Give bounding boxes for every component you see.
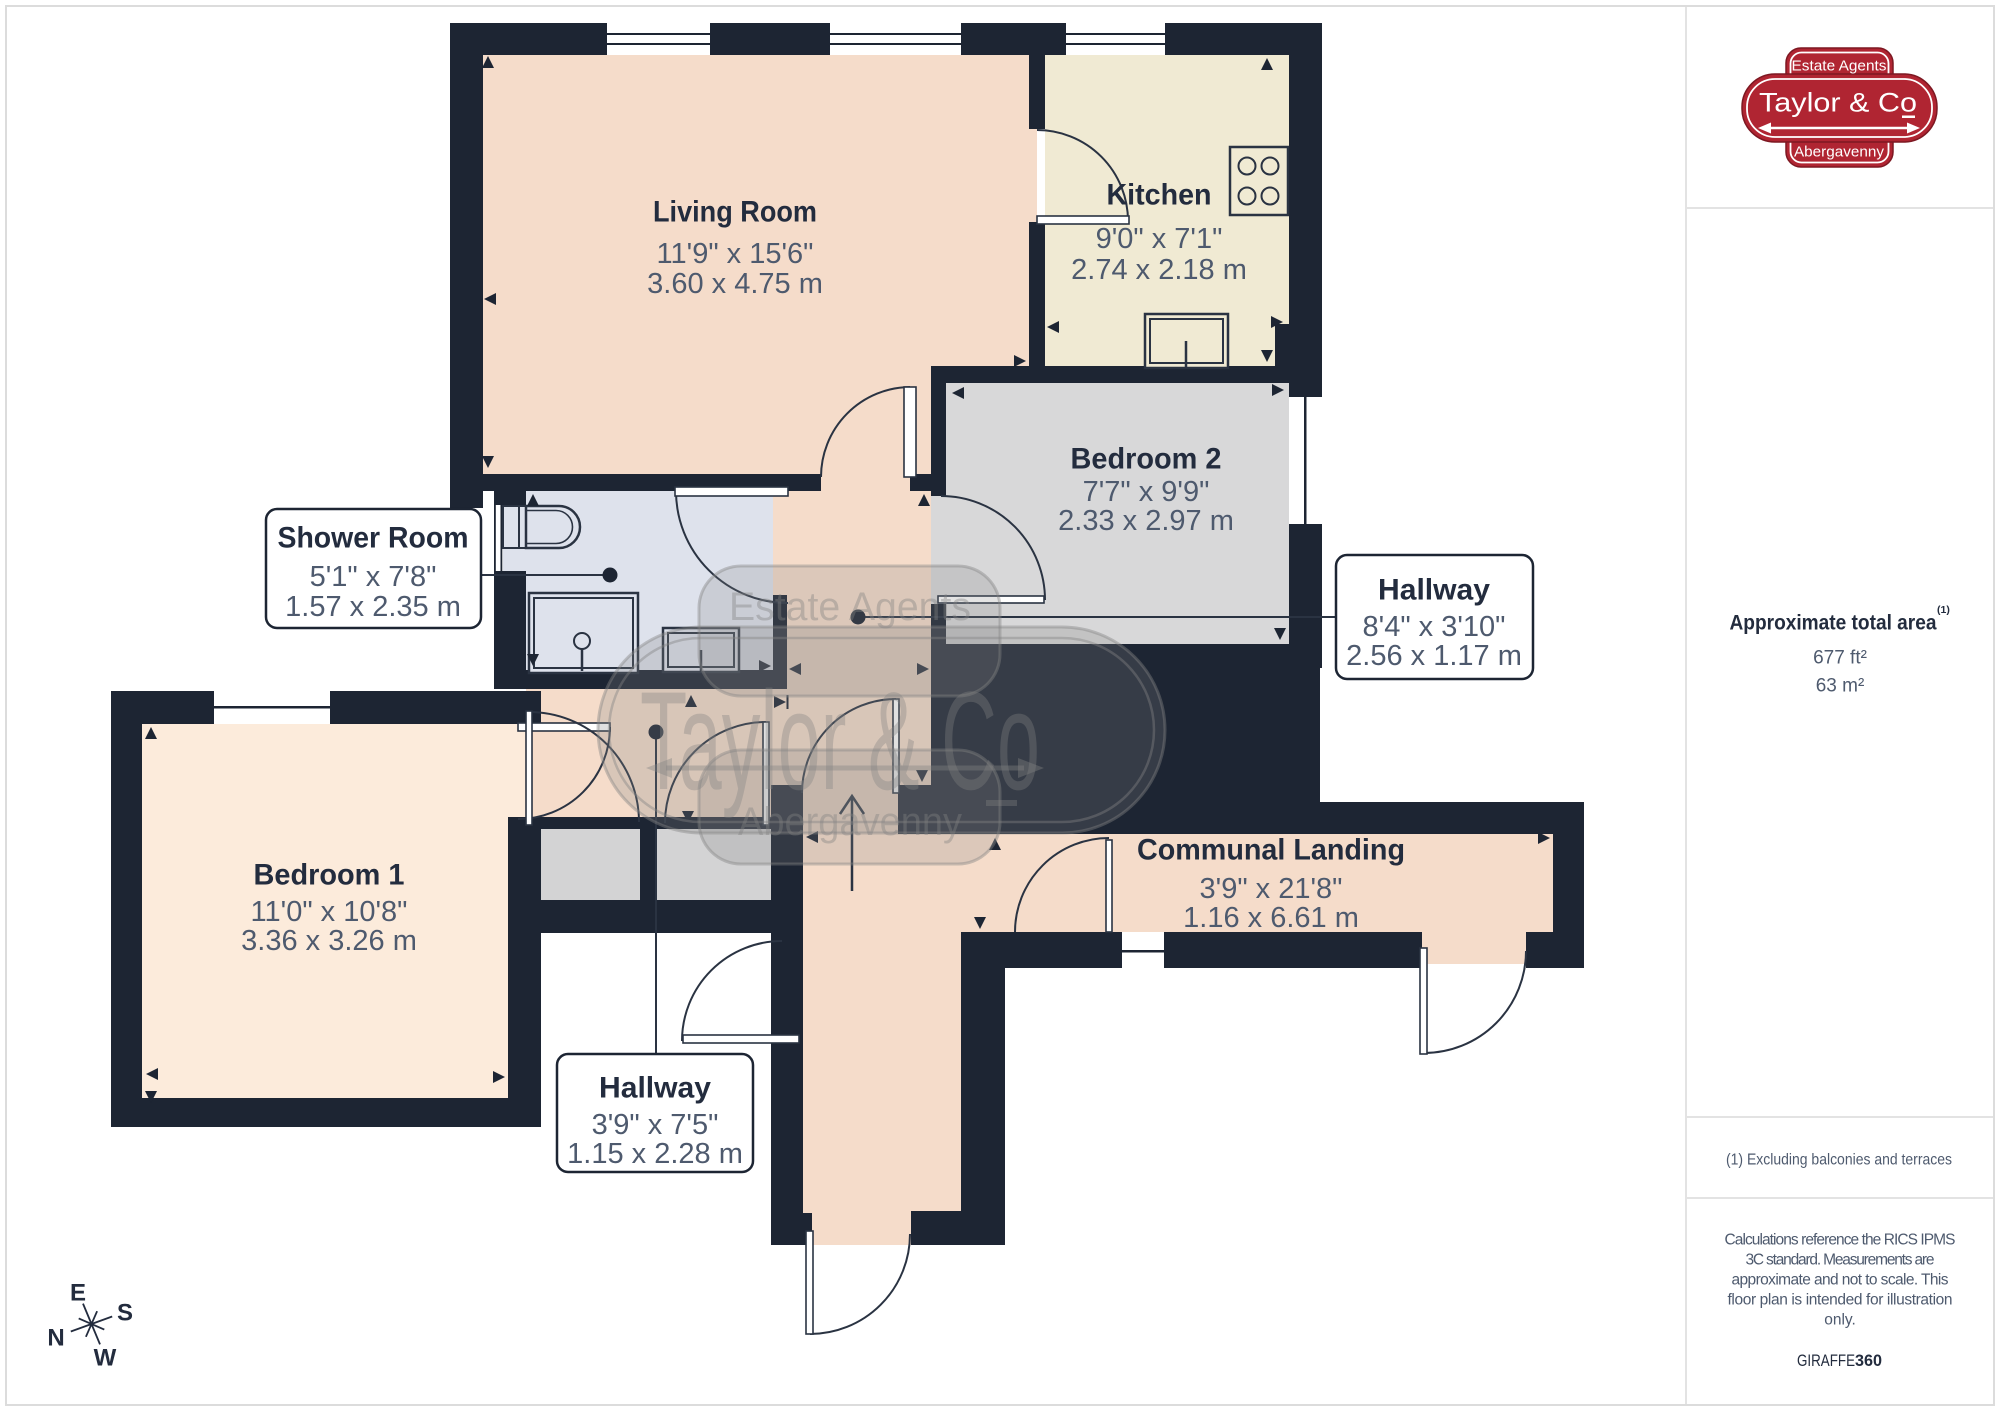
svg-text:only.: only. bbox=[1824, 1311, 1856, 1328]
svg-text:Calculations reference the RIC: Calculations reference the RICS IPMS bbox=[1725, 1231, 1956, 1248]
svg-text:GIRAFFE: GIRAFFE bbox=[1797, 1351, 1855, 1370]
svg-text:2.74 x 2.18 m: 2.74 x 2.18 m bbox=[1071, 254, 1247, 286]
svg-text:Estate Agents: Estate Agents bbox=[1792, 57, 1887, 74]
svg-text:Shower Room: Shower Room bbox=[278, 522, 469, 555]
svg-text:7'7" x 9'9": 7'7" x 9'9" bbox=[1083, 476, 1210, 508]
svg-text:63 m²: 63 m² bbox=[1816, 676, 1865, 697]
svg-text:Abergavenny: Abergavenny bbox=[738, 800, 962, 844]
svg-text:5'1" x 7'8": 5'1" x 7'8" bbox=[310, 561, 437, 593]
svg-text:1.57 x 2.35 m: 1.57 x 2.35 m bbox=[285, 591, 461, 623]
svg-text:Abergavenny: Abergavenny bbox=[1794, 143, 1884, 160]
svg-text:Estate Agents: Estate Agents bbox=[729, 585, 971, 629]
svg-text:Hallway: Hallway bbox=[1378, 574, 1490, 607]
svg-text:approximate and not to scale.: approximate and not to scale. This bbox=[1732, 1271, 1949, 1288]
svg-text:8'4" x 3'10": 8'4" x 3'10" bbox=[1363, 611, 1506, 643]
svg-text:Living Room: Living Room bbox=[653, 196, 817, 229]
svg-text:(1) Excluding balconies and te: (1) Excluding balconies and terraces bbox=[1726, 1152, 1952, 1169]
svg-text:2.33 x 2.97 m: 2.33 x 2.97 m bbox=[1058, 505, 1234, 537]
svg-text:1.16 x 6.61 m: 1.16 x 6.61 m bbox=[1183, 902, 1359, 934]
svg-text:2.56 x 1.17 m: 2.56 x 1.17 m bbox=[1346, 640, 1522, 672]
svg-text:11'9" x 15'6": 11'9" x 15'6" bbox=[657, 238, 814, 270]
svg-text:677 ft²: 677 ft² bbox=[1813, 648, 1867, 669]
svg-text:Kitchen: Kitchen bbox=[1107, 179, 1212, 212]
svg-text:3C standard. Measurements are: 3C standard. Measurements are bbox=[1746, 1251, 1935, 1268]
svg-text:Approximate total area: Approximate total area bbox=[1730, 611, 1937, 634]
svg-text:Hallway: Hallway bbox=[599, 1072, 711, 1105]
svg-text:3'9" x 21'8": 3'9" x 21'8" bbox=[1200, 873, 1343, 905]
svg-text:S: S bbox=[117, 1299, 133, 1326]
svg-text:Bedroom 2: Bedroom 2 bbox=[1071, 443, 1222, 476]
svg-text:1.15 x 2.28 m: 1.15 x 2.28 m bbox=[567, 1138, 743, 1170]
svg-text:3'9" x 7'5": 3'9" x 7'5" bbox=[592, 1109, 719, 1141]
svg-text:Communal Landing: Communal Landing bbox=[1137, 834, 1405, 867]
svg-text:3.60 x 4.75 m: 3.60 x 4.75 m bbox=[647, 268, 823, 300]
svg-text:11'0" x 10'8": 11'0" x 10'8" bbox=[251, 896, 408, 928]
svg-text:360: 360 bbox=[1855, 1351, 1882, 1370]
svg-text:9'0" x 7'1": 9'0" x 7'1" bbox=[1096, 223, 1223, 255]
svg-text:(1): (1) bbox=[1937, 604, 1950, 616]
svg-text:Taylor & Co: Taylor & Co bbox=[1759, 87, 1917, 117]
svg-text:E: E bbox=[70, 1279, 86, 1306]
svg-text:Bedroom 1: Bedroom 1 bbox=[254, 859, 405, 892]
svg-text:3.36 x 3.26 m: 3.36 x 3.26 m bbox=[241, 925, 417, 957]
svg-text:N: N bbox=[47, 1324, 64, 1351]
svg-text:floor plan is intended for ill: floor plan is intended for illustration bbox=[1728, 1291, 1953, 1308]
svg-text:W: W bbox=[94, 1344, 117, 1371]
svg-text:Taylor & Co: Taylor & Co bbox=[640, 662, 1040, 819]
